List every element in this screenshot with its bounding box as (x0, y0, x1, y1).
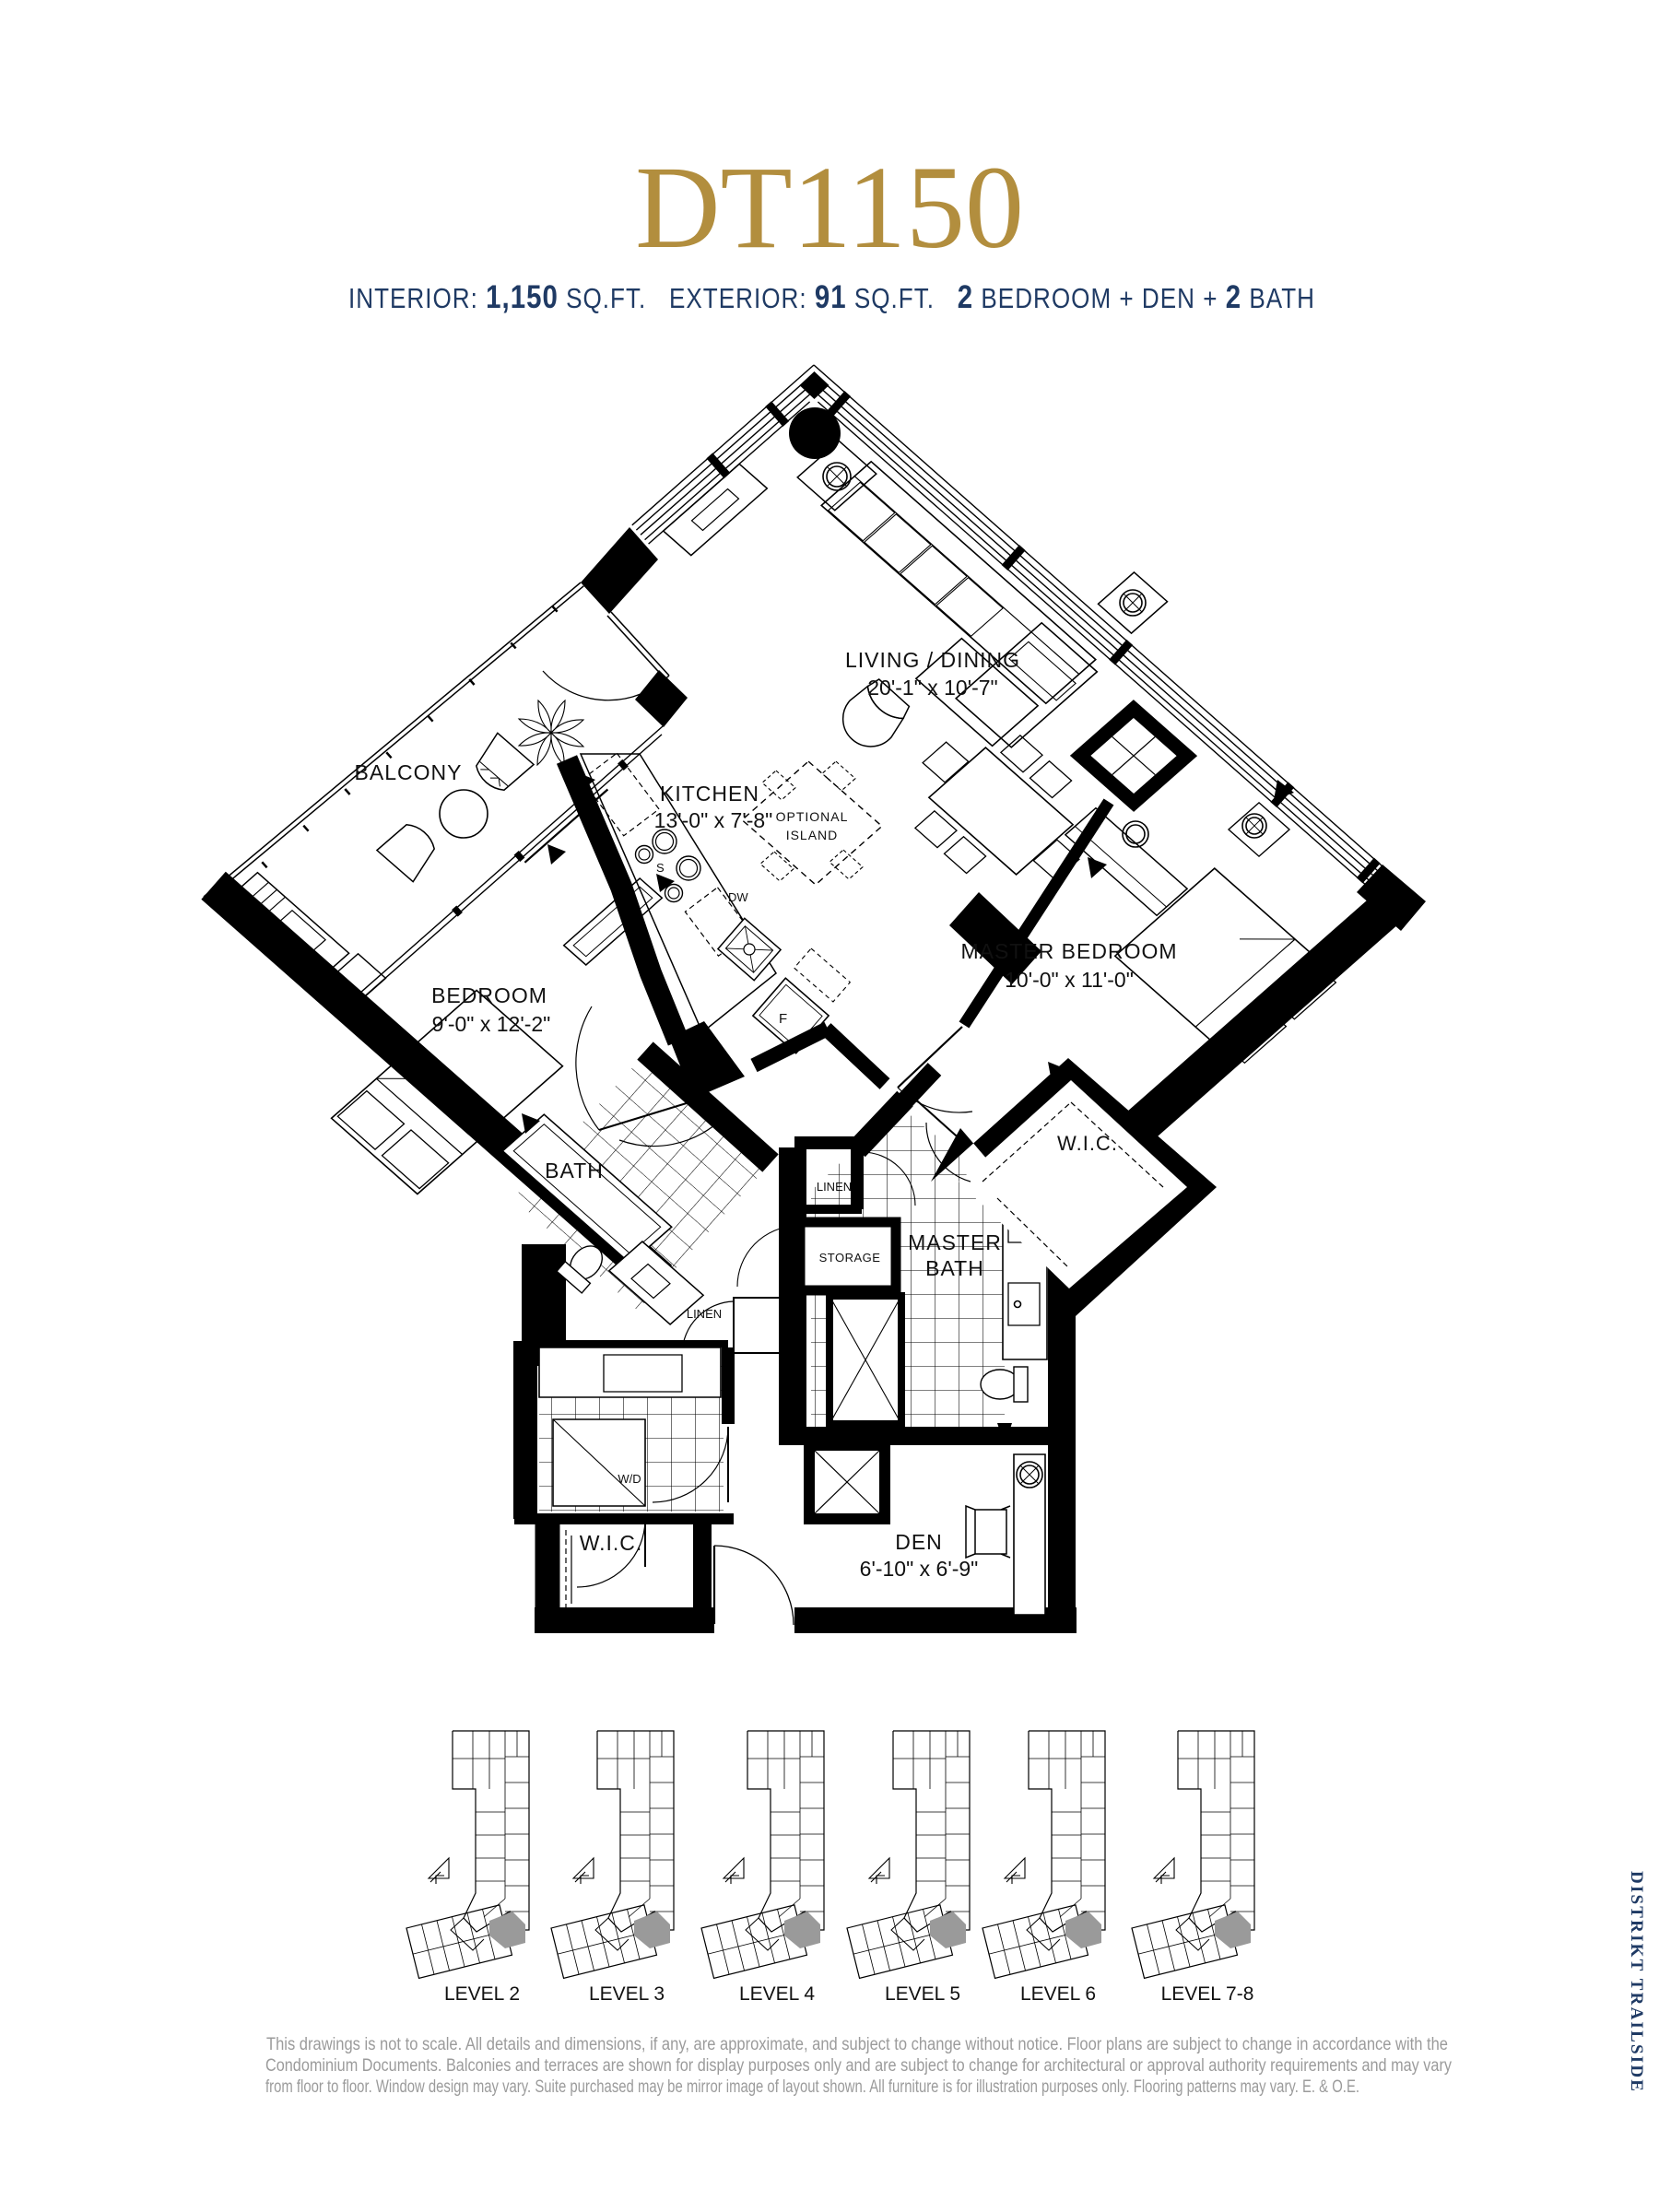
svg-text:INTERIOR: 1,150 SQ.FT. EXTER: INTERIOR: 1,150 SQ.FT. EXTERIOR: 91 SQ.F… (348, 279, 1315, 315)
svg-text:BEDROOM: BEDROOM (431, 983, 547, 1007)
svg-text:LEVEL 3: LEVEL 3 (589, 1983, 665, 2005)
svg-text:DEN: DEN (895, 1530, 943, 1554)
svg-text:6'-10" x 6'-9": 6'-10" x 6'-9" (860, 1557, 979, 1581)
svg-text:LEVEL 4: LEVEL 4 (739, 1983, 815, 2005)
svg-text:LEVEL 2: LEVEL 2 (444, 1983, 520, 2005)
svg-text:KITCHEN: KITCHEN (660, 782, 759, 806)
svg-text:10'-0" x 11'-0": 10'-0" x 11'-0" (1005, 968, 1134, 992)
svg-text:LEVEL 6: LEVEL 6 (1020, 1983, 1096, 2005)
svg-text:from floor to floor. Window de: from floor to floor. Window design may v… (265, 2077, 1359, 2097)
svg-text:W.I.C.: W.I.C. (1057, 1132, 1118, 1155)
svg-text:S: S (656, 861, 665, 875)
svg-text:F: F (779, 1011, 787, 1027)
svg-text:LINEN: LINEN (817, 1180, 852, 1194)
svg-text:MASTER: MASTER (908, 1230, 1002, 1254)
svg-text:ISLAND: ISLAND (786, 828, 839, 842)
svg-text:This drawings is not to scale.: This drawings is not to scale. All detai… (266, 2035, 1448, 2054)
svg-text:LINEN: LINEN (687, 1307, 722, 1321)
svg-text:LEVEL 7-8: LEVEL 7-8 (1161, 1983, 1254, 2005)
svg-text:W/D: W/D (618, 1472, 641, 1486)
svg-text:BALCONY: BALCONY (355, 760, 463, 784)
svg-text:13'-0" x 7'-8": 13'-0" x 7'-8" (654, 808, 773, 832)
svg-text:DISTRIKT TRAILSIDE: DISTRIKT TRAILSIDE (1627, 1871, 1646, 2093)
svg-text:BATH: BATH (925, 1256, 984, 1280)
svg-text:OPTIONAL: OPTIONAL (776, 809, 849, 824)
svg-text:LIVING / DINING: LIVING / DINING (845, 648, 1020, 672)
svg-text:LEVEL 5: LEVEL 5 (885, 1983, 960, 2005)
svg-text:20'-1" x 10'-7": 20'-1" x 10'-7" (867, 676, 997, 700)
svg-text:9'-0" x 12'-2": 9'-0" x 12'-2" (432, 1012, 551, 1036)
svg-text:W.I.C.: W.I.C. (580, 1531, 643, 1555)
svg-text:DW: DW (728, 890, 748, 904)
svg-text:BATH: BATH (545, 1159, 604, 1182)
svg-text:STORAGE: STORAGE (819, 1251, 881, 1265)
svg-text:MASTER BEDROOM: MASTER BEDROOM (960, 939, 1177, 963)
svg-text:Condominium Documents. Balconi: Condominium Documents. Balconies and ter… (265, 2056, 1452, 2076)
svg-text:DT1150: DT1150 (635, 142, 1024, 273)
